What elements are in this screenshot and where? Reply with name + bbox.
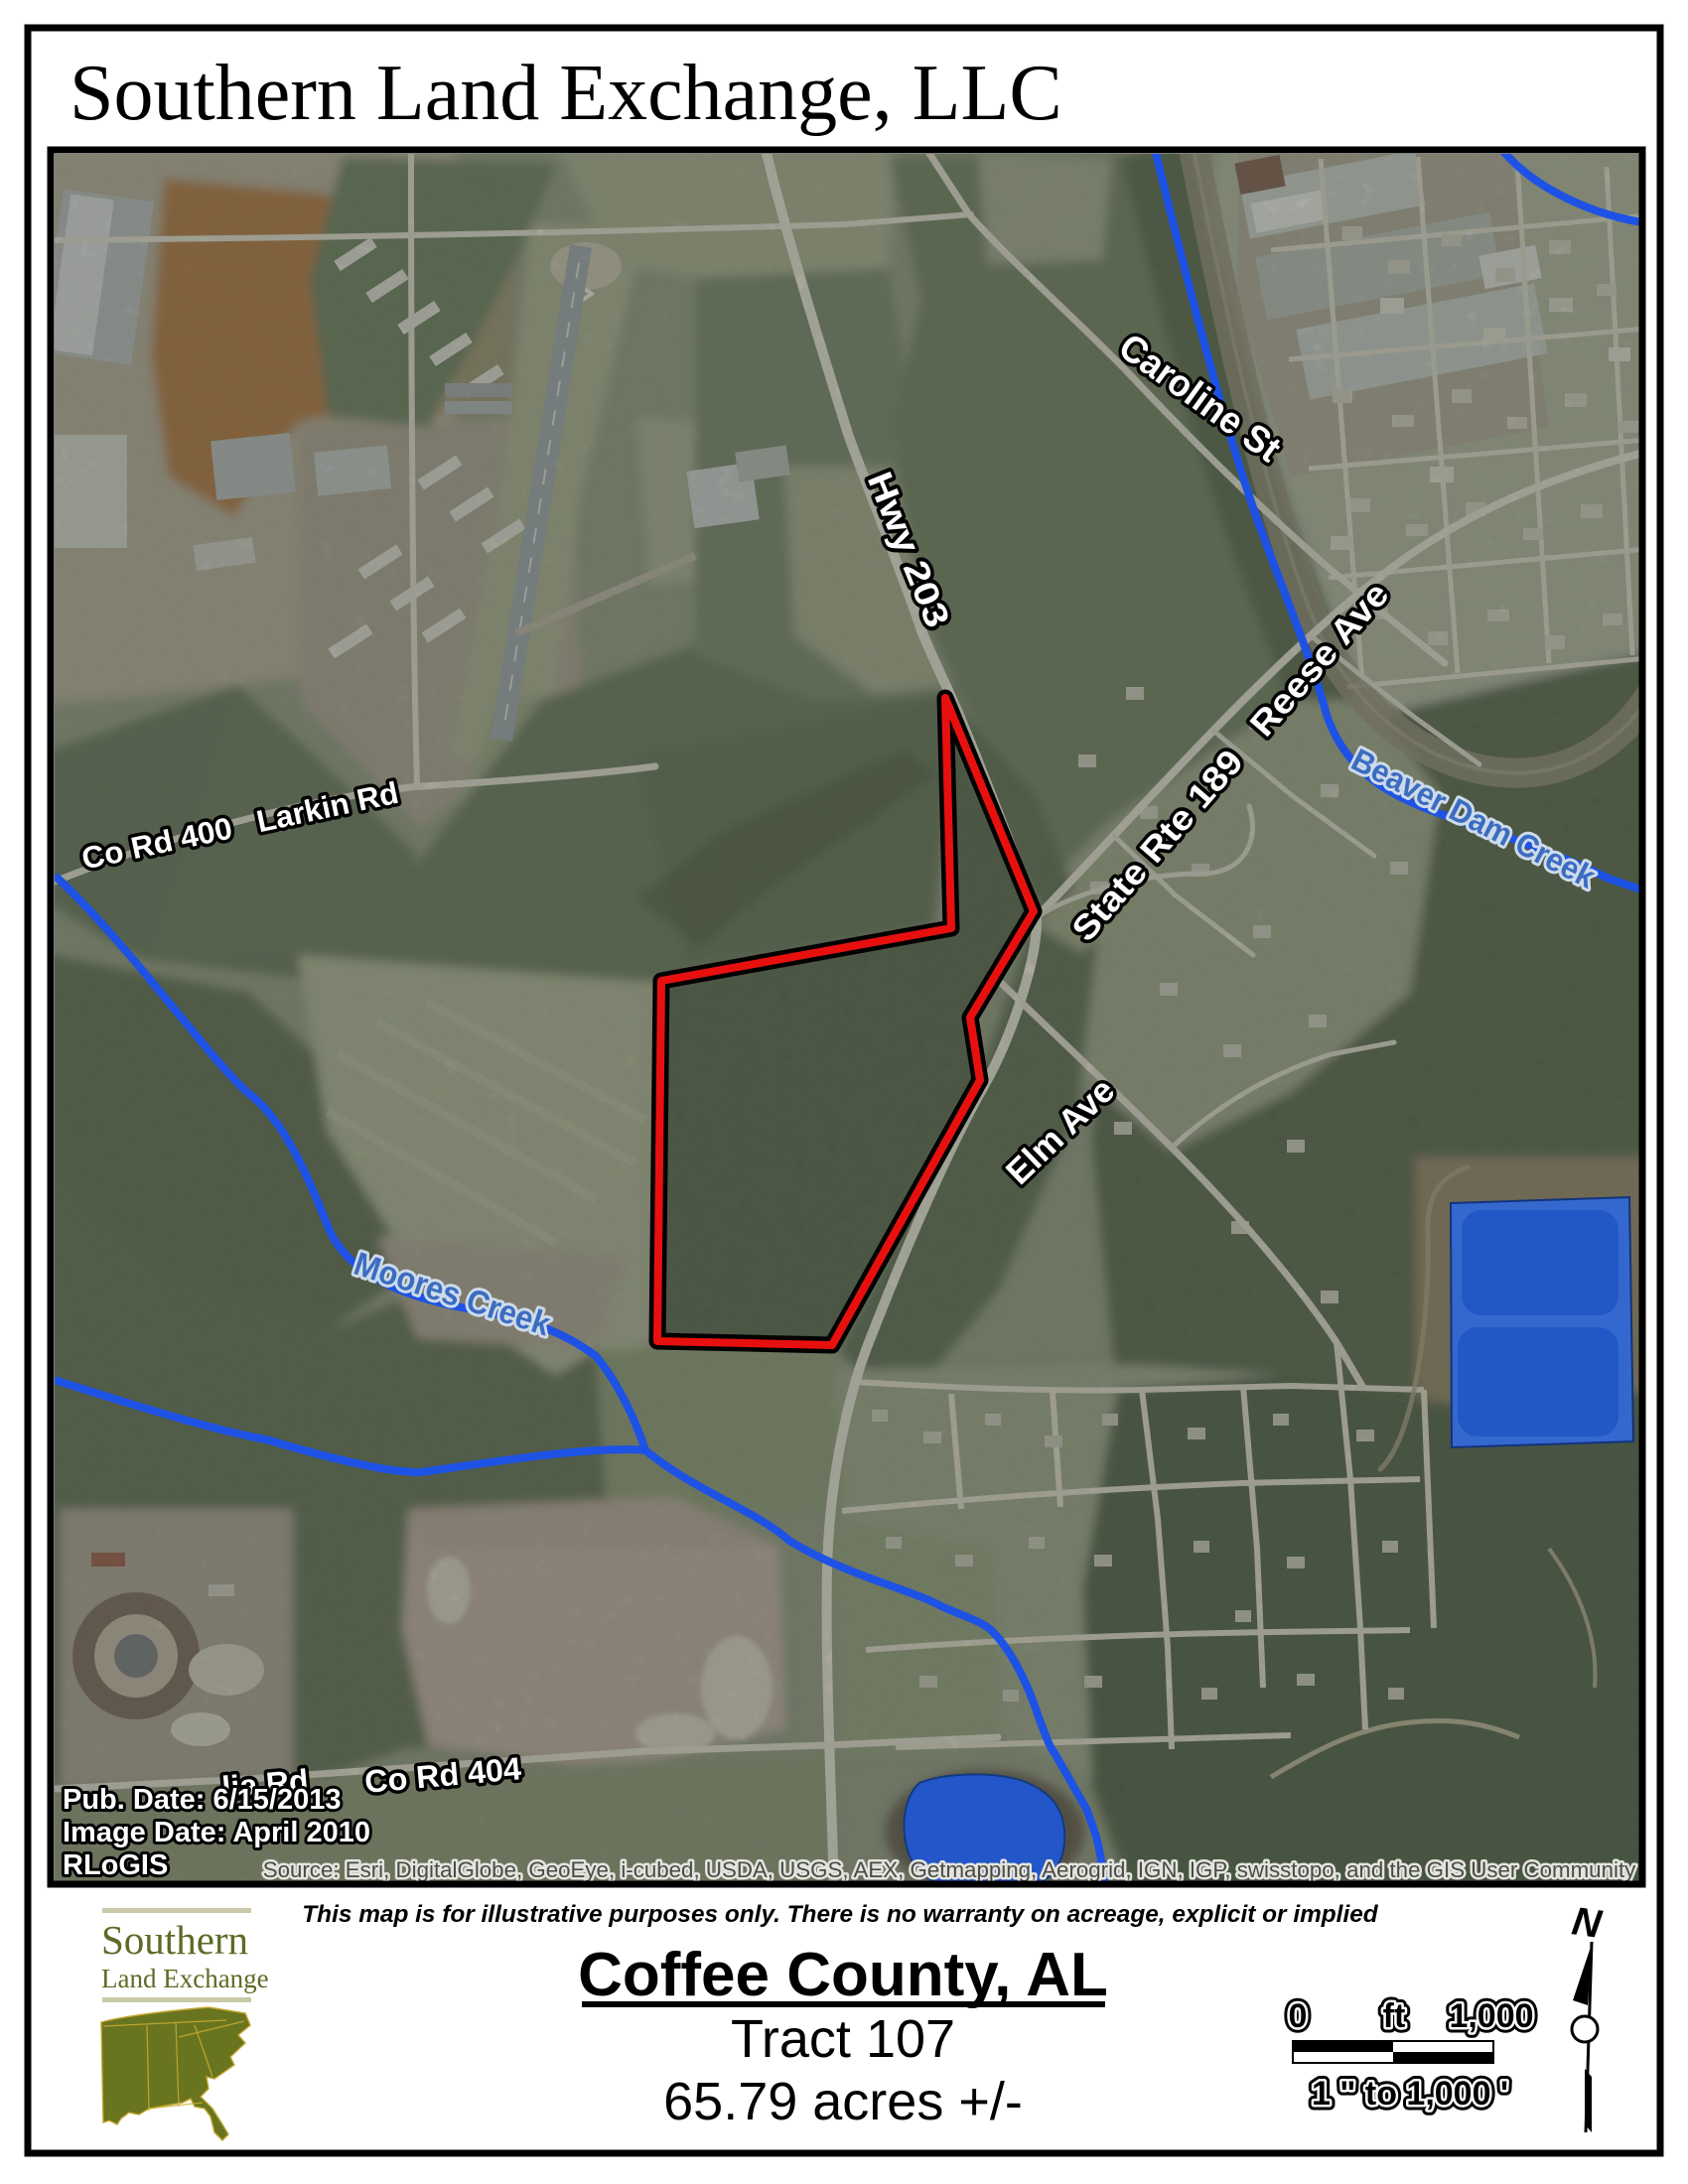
svg-text:Coffee County, AL: Coffee County, AL [578,1941,1108,2009]
svg-text:Image Date: April 2010: Image Date: April 2010 [63,1817,370,1848]
svg-text:1 " to 1,000 ': 1 " to 1,000 ' [1312,2075,1508,2113]
svg-text:This map is for illustrative p: This map is for illustrative purposes on… [302,1901,1379,1928]
svg-text:1,000: 1,000 [1449,1997,1533,2035]
svg-text:Tract 107: Tract 107 [731,2009,955,2069]
svg-text:Southern Land Exchange, LLC: Southern Land Exchange, LLC [70,50,1062,137]
svg-text:Southern: Southern [101,1917,248,1963]
svg-text:0: 0 [1289,1997,1308,2035]
svg-text:65.79 acres +/-: 65.79 acres +/- [663,2072,1023,2131]
svg-text:Pub. Date: 6/15/2013: Pub. Date: 6/15/2013 [63,1784,341,1816]
svg-text:RLoGIS: RLoGIS [63,1849,168,1881]
svg-text:ft: ft [1383,1997,1406,2035]
svg-text:Land Exchange: Land Exchange [101,1964,269,1993]
svg-text:Source: Esri, DigitalGlobe, Ge: Source: Esri, DigitalGlobe, GeoEye, i-cu… [263,1857,1636,1882]
